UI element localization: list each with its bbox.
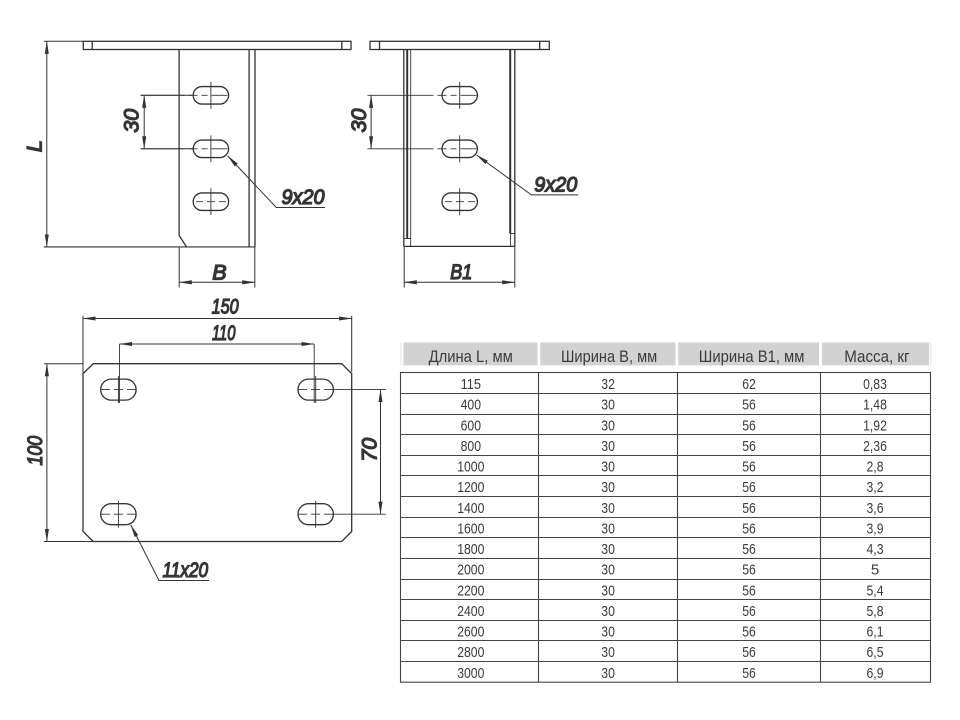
svg-text:56: 56 (742, 624, 756, 641)
svg-text:56: 56 (742, 582, 756, 599)
svg-text:1200: 1200 (457, 479, 484, 496)
svg-text:3,2: 3,2 (867, 479, 884, 496)
svg-text:Масса, кг: Масса, кг (844, 347, 909, 366)
svg-text:56: 56 (742, 500, 756, 517)
svg-text:56: 56 (742, 644, 756, 661)
svg-text:2,36: 2,36 (863, 438, 887, 455)
svg-text:B: B (212, 261, 226, 285)
svg-text:9x20: 9x20 (282, 185, 325, 209)
svg-text:2800: 2800 (457, 644, 484, 661)
svg-text:2600: 2600 (457, 624, 484, 641)
svg-text:30: 30 (601, 479, 615, 496)
svg-text:5,8: 5,8 (867, 603, 884, 620)
svg-text:30: 30 (601, 624, 615, 641)
svg-text:56: 56 (742, 541, 756, 558)
svg-text:56: 56 (742, 665, 756, 682)
svg-text:56: 56 (742, 520, 756, 537)
svg-text:30: 30 (601, 582, 615, 599)
svg-text:2200: 2200 (457, 582, 484, 599)
svg-text:30: 30 (601, 541, 615, 558)
svg-text:1800: 1800 (457, 541, 484, 558)
svg-text:800: 800 (461, 438, 481, 455)
svg-text:30: 30 (601, 644, 615, 661)
svg-text:56: 56 (742, 459, 756, 476)
svg-text:6,1: 6,1 (867, 624, 884, 641)
svg-text:3,6: 3,6 (867, 500, 884, 517)
svg-text:56: 56 (742, 562, 756, 579)
svg-text:32: 32 (601, 376, 615, 393)
svg-text:30: 30 (601, 562, 615, 579)
svg-text:2000: 2000 (457, 562, 484, 579)
svg-text:L: L (22, 140, 46, 152)
svg-text:110: 110 (212, 321, 236, 345)
svg-text:Ширина В1, мм: Ширина В1, мм (699, 347, 805, 366)
svg-text:1600: 1600 (457, 520, 484, 537)
svg-text:150: 150 (212, 295, 239, 319)
svg-text:30: 30 (119, 109, 143, 133)
svg-text:30: 30 (347, 109, 371, 133)
svg-text:11x20: 11x20 (162, 558, 208, 582)
svg-text:400: 400 (461, 397, 481, 414)
svg-text:6,9: 6,9 (867, 665, 884, 682)
svg-text:62: 62 (742, 376, 756, 393)
svg-text:30: 30 (601, 500, 615, 517)
svg-text:0,83: 0,83 (863, 376, 887, 393)
svg-text:600: 600 (461, 417, 481, 434)
svg-text:B1: B1 (450, 260, 472, 284)
svg-text:5,4: 5,4 (867, 582, 884, 599)
svg-text:56: 56 (742, 417, 756, 434)
svg-text:56: 56 (742, 438, 756, 455)
svg-text:30: 30 (601, 603, 615, 620)
svg-text:1,92: 1,92 (863, 417, 887, 434)
svg-text:56: 56 (742, 479, 756, 496)
svg-text:9x20: 9x20 (534, 172, 577, 196)
svg-text:3,9: 3,9 (867, 520, 884, 537)
svg-text:100: 100 (23, 436, 47, 466)
svg-text:30: 30 (601, 665, 615, 682)
svg-text:1000: 1000 (457, 459, 484, 476)
svg-text:56: 56 (742, 603, 756, 620)
svg-text:2400: 2400 (457, 603, 484, 620)
svg-text:6,5: 6,5 (867, 644, 884, 661)
svg-text:56: 56 (742, 397, 756, 414)
svg-text:30: 30 (601, 417, 615, 434)
svg-text:Длина L, мм: Длина L, мм (429, 347, 513, 366)
svg-text:3000: 3000 (457, 665, 484, 682)
svg-text:5: 5 (871, 562, 879, 579)
svg-text:70: 70 (357, 438, 381, 462)
svg-text:30: 30 (601, 438, 615, 455)
svg-text:2,8: 2,8 (867, 459, 884, 476)
svg-text:115: 115 (461, 376, 481, 393)
svg-text:1400: 1400 (457, 500, 484, 517)
svg-text:30: 30 (601, 459, 615, 476)
svg-text:30: 30 (601, 520, 615, 537)
svg-text:Ширина В, мм: Ширина В, мм (561, 347, 657, 366)
svg-text:1,48: 1,48 (863, 397, 887, 414)
svg-text:30: 30 (601, 397, 615, 414)
svg-text:4,3: 4,3 (867, 541, 884, 558)
